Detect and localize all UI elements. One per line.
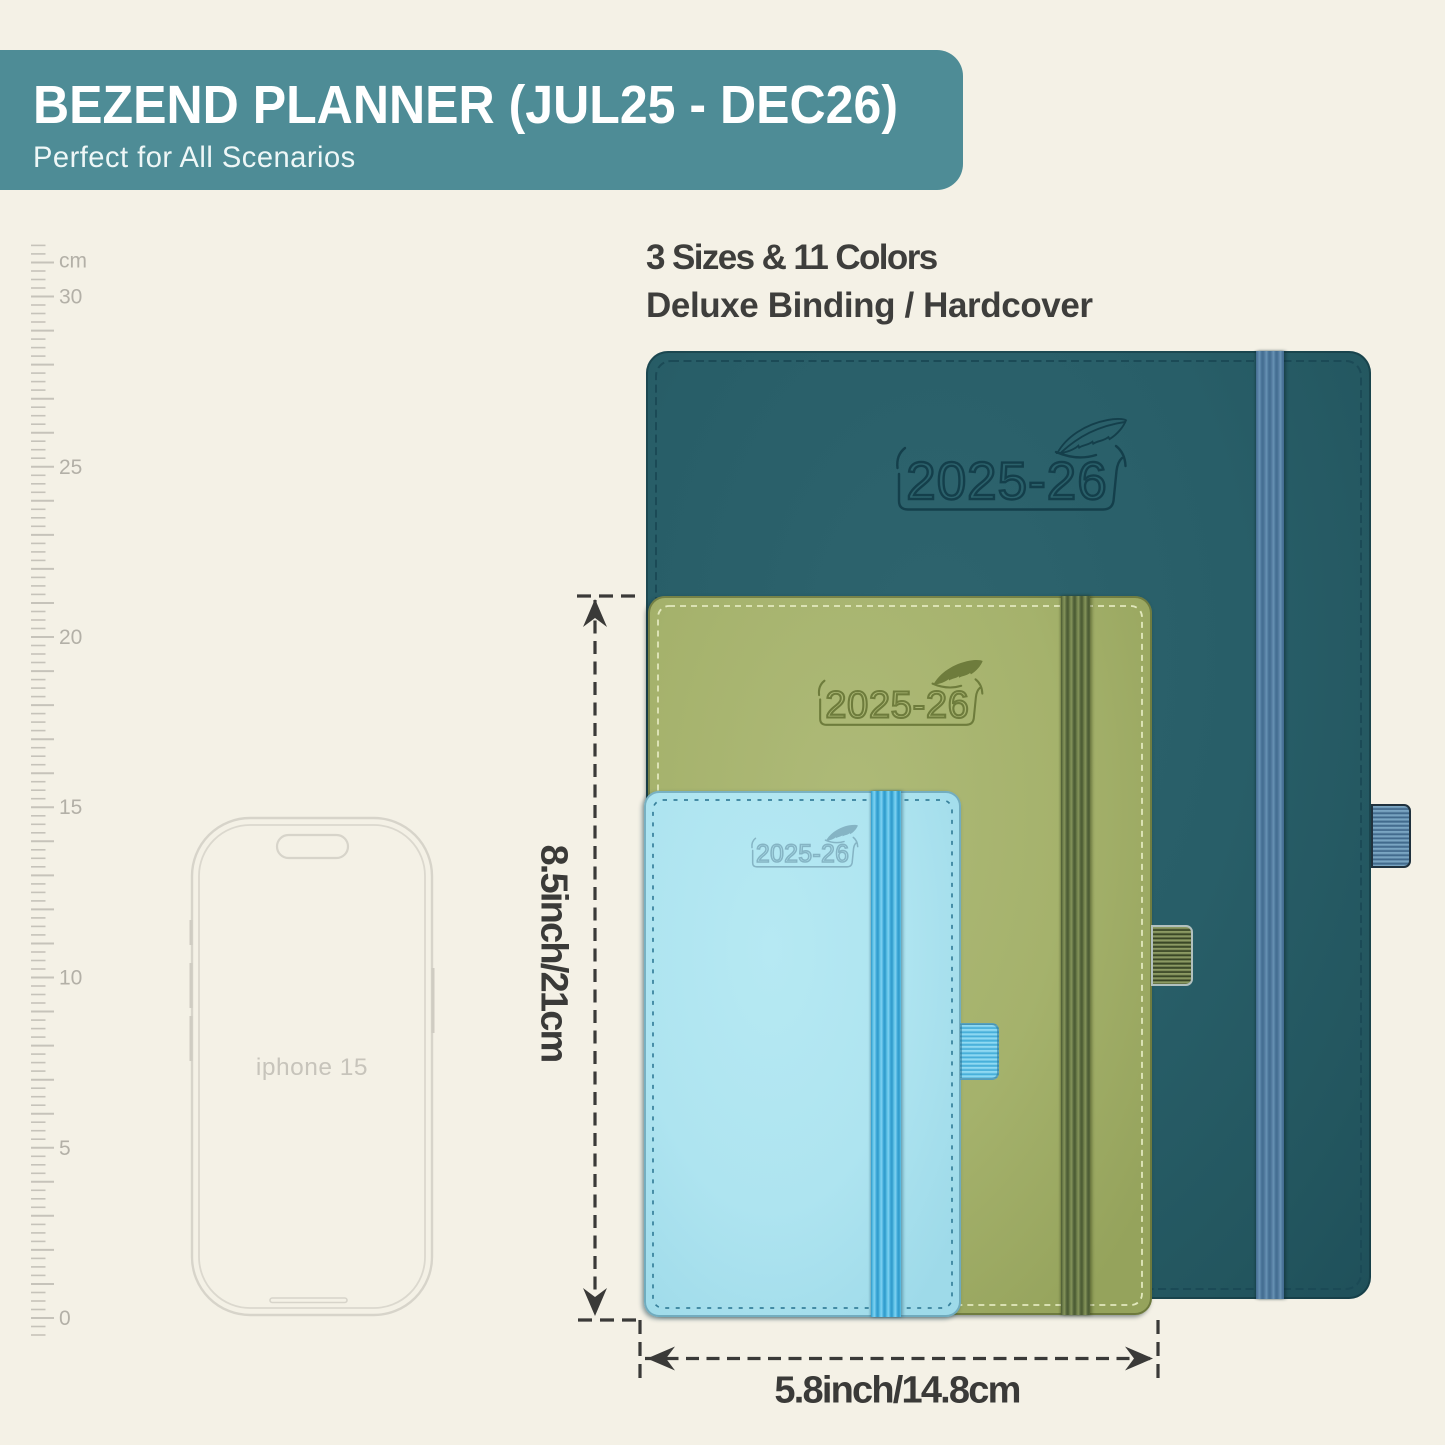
svg-text:2025-26: 2025-26 — [825, 684, 969, 726]
svg-text:30: 30 — [59, 286, 82, 309]
svg-text:2025-26: 2025-26 — [756, 841, 849, 868]
svg-text:0: 0 — [59, 1307, 71, 1330]
svg-text:cm: cm — [59, 250, 87, 273]
svg-text:10: 10 — [59, 967, 82, 990]
svg-text:15: 15 — [59, 796, 82, 819]
svg-text:5: 5 — [59, 1137, 71, 1160]
svg-text:iphone 15: iphone 15 — [256, 1054, 368, 1081]
svg-text:20: 20 — [59, 626, 82, 649]
svg-text:2025-26: 2025-26 — [906, 452, 1108, 511]
svg-text:25: 25 — [59, 456, 82, 479]
